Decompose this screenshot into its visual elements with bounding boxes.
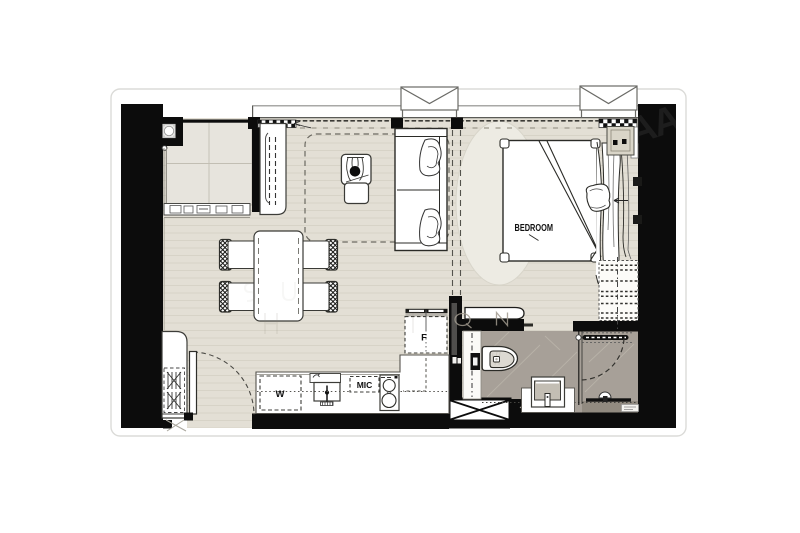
svg-text:MIC: MIC [357,380,373,390]
svg-text:BEDROOM: BEDROOM [515,223,554,234]
svg-text:F: F [421,333,427,344]
svg-text:W: W [276,389,285,400]
